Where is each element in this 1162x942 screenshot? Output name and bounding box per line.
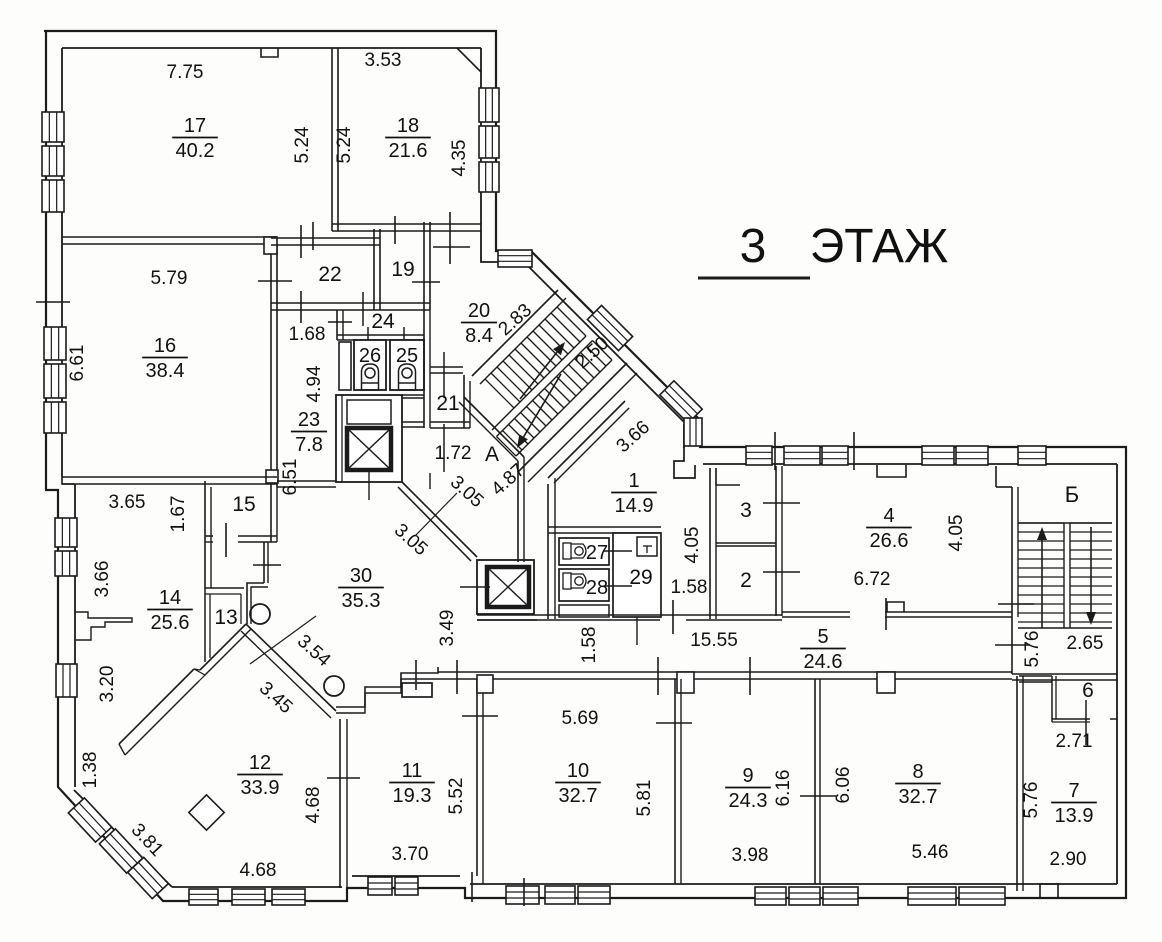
svg-text:2.90: 2.90 [1050, 849, 1087, 870]
svg-text:35.3: 35.3 [342, 590, 381, 612]
svg-text:23: 23 [298, 409, 320, 431]
svg-text:3.65: 3.65 [109, 492, 146, 513]
svg-text:20: 20 [468, 300, 490, 322]
svg-text:4.68: 4.68 [303, 787, 324, 824]
svg-text:27: 27 [586, 542, 608, 564]
svg-text:8: 8 [912, 761, 923, 783]
svg-text:5.46: 5.46 [912, 842, 949, 863]
svg-text:1.58: 1.58 [671, 577, 708, 598]
svg-text:24: 24 [371, 310, 395, 333]
svg-text:14: 14 [159, 587, 181, 609]
svg-text:22: 22 [318, 263, 341, 286]
svg-text:4.68: 4.68 [240, 860, 277, 881]
svg-text:33.9: 33.9 [241, 777, 280, 799]
svg-text:40.2: 40.2 [176, 140, 215, 162]
svg-text:2: 2 [740, 569, 752, 592]
svg-text:4.94: 4.94 [304, 365, 325, 402]
svg-text:1.58: 1.58 [579, 627, 600, 664]
svg-text:26.6: 26.6 [870, 530, 909, 552]
svg-text:6.51: 6.51 [280, 459, 301, 496]
svg-text:13: 13 [214, 606, 237, 629]
svg-text:24.6: 24.6 [804, 651, 843, 673]
svg-text:3.98: 3.98 [732, 845, 769, 866]
svg-text:4.35: 4.35 [449, 140, 470, 177]
svg-text:25: 25 [396, 345, 418, 367]
svg-text:6: 6 [1082, 679, 1094, 702]
svg-text:15: 15 [232, 493, 255, 516]
svg-text:32.7: 32.7 [899, 786, 938, 808]
svg-text:3.53: 3.53 [365, 50, 402, 71]
svg-text:3.70: 3.70 [392, 844, 429, 865]
svg-text:1.67: 1.67 [168, 496, 189, 533]
svg-text:5.81: 5.81 [634, 780, 655, 817]
svg-text:6.72: 6.72 [854, 569, 891, 590]
svg-text:1: 1 [628, 470, 639, 492]
svg-text:4.05: 4.05 [682, 527, 703, 564]
svg-text:Б: Б [1065, 482, 1079, 507]
svg-text:6.16: 6.16 [773, 770, 794, 807]
svg-text:5.76: 5.76 [1021, 782, 1042, 819]
svg-text:3.49: 3.49 [437, 610, 458, 647]
svg-text:5.76: 5.76 [1022, 631, 1043, 668]
svg-text:7.8: 7.8 [295, 434, 323, 456]
svg-text:1.72: 1.72 [435, 443, 472, 464]
svg-text:4: 4 [883, 505, 894, 527]
svg-text:5: 5 [817, 626, 828, 648]
svg-text:5.24: 5.24 [292, 126, 313, 163]
svg-text:А: А [485, 443, 499, 466]
svg-text:32.7: 32.7 [559, 785, 598, 807]
svg-text:14.9: 14.9 [615, 495, 654, 517]
svg-text:21: 21 [436, 392, 459, 415]
svg-text:28: 28 [586, 577, 608, 599]
svg-text:19: 19 [391, 258, 414, 281]
svg-text:21.6: 21.6 [389, 140, 428, 162]
svg-text:3.20: 3.20 [97, 666, 118, 703]
svg-text:13.9: 13.9 [1055, 805, 1094, 827]
svg-text:8.4: 8.4 [465, 325, 493, 347]
svg-text:6.61: 6.61 [67, 345, 88, 382]
svg-text:5.69: 5.69 [562, 708, 599, 729]
svg-text:16: 16 [154, 335, 176, 357]
svg-text:19.3: 19.3 [393, 785, 432, 807]
svg-text:5.24: 5.24 [334, 126, 355, 163]
svg-text:5.79: 5.79 [151, 268, 188, 289]
svg-text:6.06: 6.06 [833, 767, 854, 804]
svg-text:ЭТАЖ: ЭТАЖ [810, 220, 949, 273]
svg-text:12: 12 [249, 752, 271, 774]
svg-text:11: 11 [402, 760, 423, 782]
svg-text:1.38: 1.38 [80, 752, 101, 789]
svg-text:1.68: 1.68 [289, 324, 326, 345]
svg-text:2.71: 2.71 [1056, 731, 1093, 752]
svg-text:7.75: 7.75 [167, 62, 204, 83]
svg-text:25.6: 25.6 [151, 612, 190, 634]
svg-text:9: 9 [742, 765, 753, 787]
svg-text:18: 18 [397, 115, 419, 137]
svg-text:38.4: 38.4 [146, 360, 185, 382]
svg-text:7: 7 [1068, 780, 1079, 802]
svg-text:10: 10 [567, 760, 589, 782]
svg-text:3: 3 [740, 220, 767, 273]
svg-text:2.65: 2.65 [1067, 633, 1104, 654]
svg-text:5.52: 5.52 [446, 778, 467, 815]
svg-text:3.66: 3.66 [92, 561, 113, 598]
svg-text:30: 30 [350, 565, 372, 587]
svg-text:3: 3 [740, 499, 752, 522]
svg-text:15.55: 15.55 [690, 630, 738, 651]
svg-text:24.3: 24.3 [729, 790, 768, 812]
svg-text:4.05: 4.05 [946, 515, 967, 552]
svg-text:29: 29 [629, 566, 652, 589]
svg-text:26: 26 [359, 345, 381, 367]
svg-text:17: 17 [184, 115, 206, 137]
